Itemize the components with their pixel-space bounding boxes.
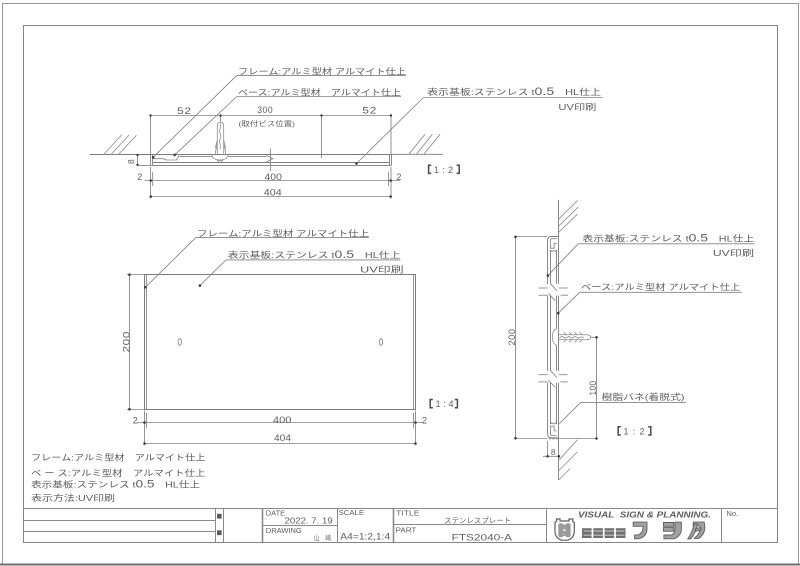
svg-text:DATE: DATE — [266, 510, 286, 517]
svg-text:200: 200 — [122, 331, 132, 353]
svg-text:TITLE: TITLE — [396, 511, 420, 518]
svg-text:200: 200 — [507, 329, 517, 346]
svg-text:2: 2 — [422, 415, 427, 425]
svg-text:ベース:アルミ型材 アルマイト仕上: ベース:アルミ型材 アルマイト仕上 — [238, 87, 401, 97]
svg-text:UV印刷: UV印刷 — [713, 248, 754, 258]
svg-text:(取付ビス位置): (取付ビス位置) — [239, 119, 296, 128]
svg-text:UV印刷: UV印刷 — [558, 102, 596, 112]
svg-text:表示基板:ステンレス t0.5 HL仕上: 表示基板:ステンレス t0.5 HL仕上 — [31, 479, 200, 491]
svg-text:2: 2 — [396, 172, 401, 182]
svg-text:8: 8 — [126, 159, 136, 164]
svg-text:2022. 7. 19: 2022. 7. 19 — [285, 516, 334, 525]
svg-text:表示基板:ステンレス t0.5 HL仕上: 表示基板:ステンレス t0.5 HL仕上 — [427, 86, 601, 98]
svg-text:1:2: 1:2 — [434, 165, 453, 175]
svg-text:フレーム:アルミ型材 アルマイト仕上: フレーム:アルミ型材 アルマイト仕上 — [238, 66, 406, 76]
svg-text:フレーム:アルミ型材 アルマイト仕上: フレーム:アルミ型材 アルマイト仕上 — [31, 453, 205, 463]
svg-text:表示基板:ステンレス t0.5 HL仕上: 表示基板:ステンレス t0.5 HL仕上 — [228, 249, 401, 261]
svg-text:フレーム:アルミ型材 アルマイト仕上: フレーム:アルミ型材 アルマイト仕上 — [197, 228, 369, 238]
svg-text:VISUAL SIGN & PLANNING.: VISUAL SIGN & PLANNING. — [578, 510, 711, 519]
svg-text:52: 52 — [177, 106, 192, 116]
svg-text:UV印刷: UV印刷 — [360, 265, 404, 275]
svg-text:52: 52 — [362, 106, 377, 116]
svg-text:404: 404 — [264, 188, 282, 198]
svg-text:SCALE: SCALE — [339, 510, 365, 517]
svg-text:ベ ー ス:アルミ型材 アルマイト仕上: ベ ー ス:アルミ型材 アルマイト仕上 — [31, 468, 205, 478]
svg-text:1:2: 1:2 — [624, 427, 645, 437]
svg-text:404: 404 — [274, 433, 291, 443]
svg-text:300: 300 — [257, 105, 273, 115]
svg-text:400: 400 — [265, 172, 282, 182]
svg-text:1:4: 1:4 — [436, 399, 454, 409]
svg-text:A4=1:2,1:4: A4=1:2,1:4 — [340, 531, 390, 542]
svg-text:400: 400 — [273, 415, 292, 425]
svg-text:山 崎: 山 崎 — [314, 533, 331, 542]
svg-text:PART: PART — [396, 527, 417, 534]
svg-text:FTS2040-A: FTS2040-A — [452, 533, 512, 543]
svg-text:表示方法:UV印刷: 表示方法:UV印刷 — [31, 493, 115, 503]
svg-text:表示基板:ステンレス t0.5 HL仕上: 表示基板:ステンレス t0.5 HL仕上 — [582, 233, 754, 245]
svg-text:DRAWING: DRAWING — [266, 528, 302, 535]
svg-text:100: 100 — [588, 380, 598, 395]
svg-text:No.: No. — [727, 509, 739, 518]
svg-text:ベース:アルミ型材 アルマイト仕上: ベース:アルミ型材 アルマイト仕上 — [581, 282, 740, 292]
svg-text:ステンレスプレート: ステンレスプレート — [444, 516, 511, 525]
svg-text:8: 8 — [551, 447, 556, 457]
svg-text:樹脂バネ(着脱式): 樹脂バネ(着脱式) — [602, 392, 685, 402]
svg-text:2: 2 — [133, 415, 138, 425]
svg-text:2: 2 — [137, 172, 142, 182]
